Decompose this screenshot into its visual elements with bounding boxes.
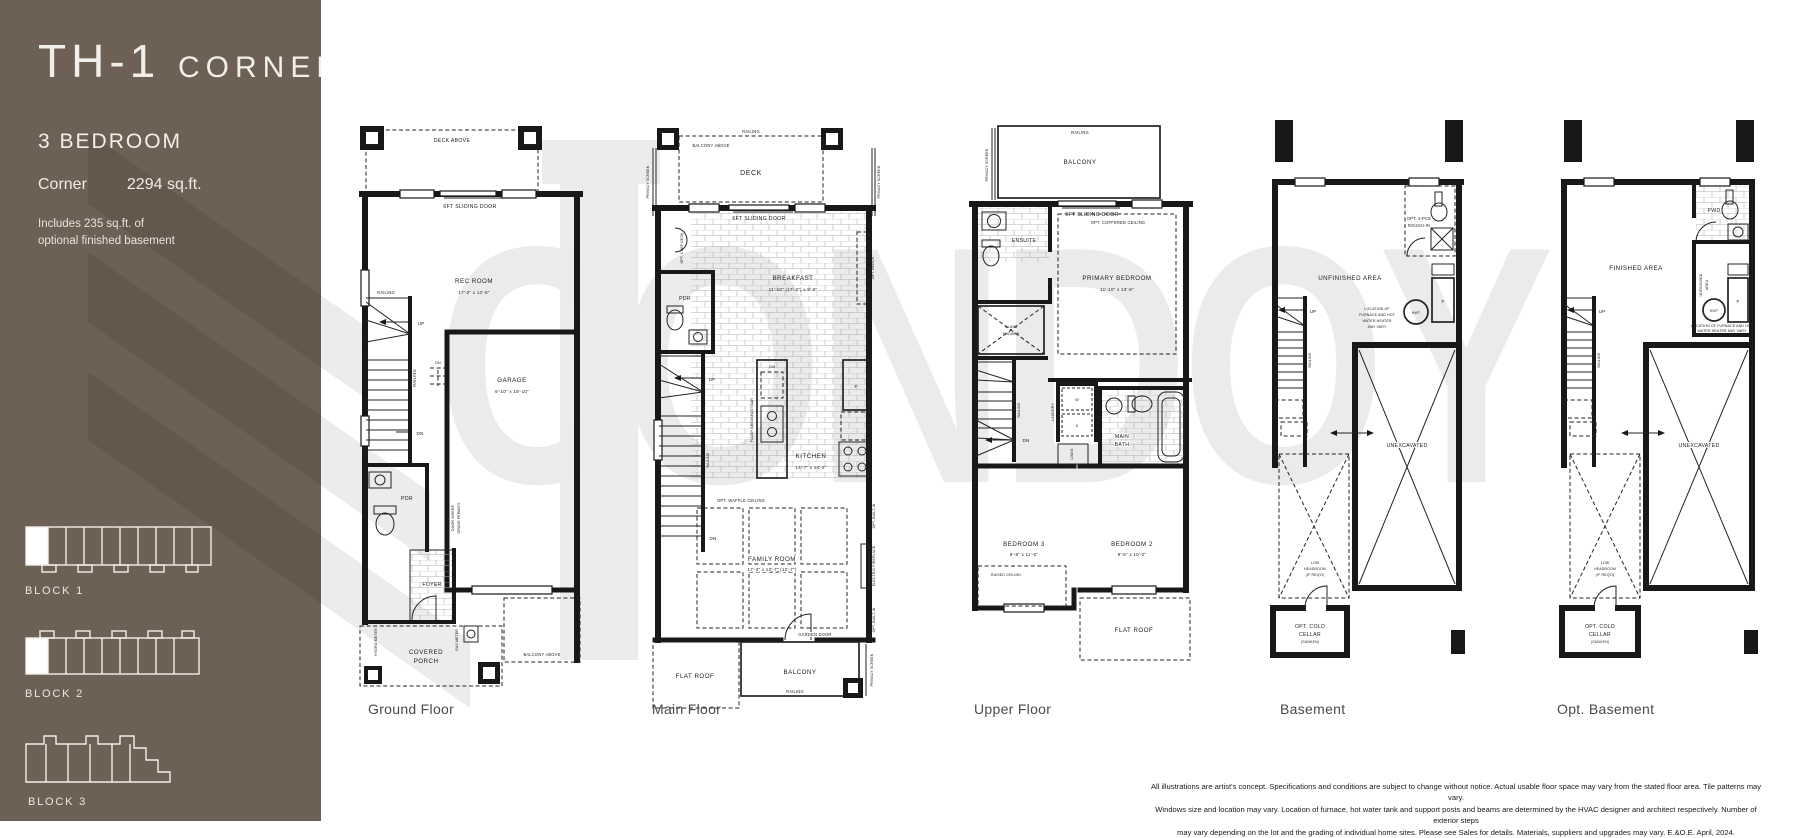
upper-bath-tile <box>1100 388 1184 462</box>
optb-furnace-label: F <box>1736 299 1739 304</box>
upper-glass-shower <box>978 306 1044 354</box>
upper-dn-label: DN <box>1022 438 1029 443</box>
upper-shower-label: SHOWER <box>1003 332 1020 336</box>
upper-primary-dim: 11'-10" x 13'-6" <box>1100 287 1134 292</box>
basement-unexcavated-label: UNEXCAVATED <box>1386 443 1427 449</box>
basement-note: Includes 235 sq.ft. of optional finished… <box>38 216 175 251</box>
basement-railing-label: RAILING <box>1308 352 1312 367</box>
main-railing-balcony-label: RAILING <box>786 689 804 694</box>
optb-note-line2: WATER HEATER MAY VARY <box>1698 329 1747 333</box>
ground-sliding-door-label: 6FT SLIDING DOOR <box>443 204 496 210</box>
basement-low-label2: HEADROOM <box>1304 567 1326 571</box>
basement-cellar-label1: OPT. COLD <box>1295 624 1325 630</box>
caption-ground-floor: Ground Floor <box>368 701 454 717</box>
upper-bed3-dim: 8'-5" x 11'-5" <box>1010 552 1038 557</box>
main-builtin-top-label: OPT. BUILT-IN <box>872 503 876 528</box>
optb-unexcavated-label: UNEXCAVATED <box>1678 443 1719 449</box>
optb-unfinished-label1: UNFINISHED <box>1699 273 1703 296</box>
main-up-label: UP <box>709 377 716 382</box>
upper-bed2-dim: 8'-5" x 10'-2" <box>1118 552 1147 557</box>
upper-raised-ceiling-area <box>978 566 1066 606</box>
ground-balcony-above-label: BALCONY ABOVE <box>523 652 560 657</box>
ground-dn-label: DN <box>416 431 423 436</box>
caption-opt-basement: Opt. Basement <box>1557 701 1654 717</box>
upper-raised-ceiling-label: RAISED CEILING <box>991 573 1021 577</box>
basement-roughin-label2: ROUGH-IN <box>1408 223 1430 228</box>
main-kitchen-dim: 14'-7" x 14'-2" <box>795 465 826 470</box>
basement-unfinished-label: UNFINISHED AREA <box>1318 275 1382 282</box>
upper-ensuite-tile <box>976 206 1050 262</box>
ground-deck-above <box>360 126 542 192</box>
ground-deck-above-label: DECK ABOVE <box>434 138 471 144</box>
plan-basement: OPT. 3-PCE ROUGH-IN UNFINISHED AREA HWT … <box>1267 120 1505 700</box>
optb-note-line1: LOCATION OF FURNACE AND HOT <box>1691 324 1754 328</box>
optb-cold-cellar <box>1562 586 1758 655</box>
main-sliding-door-label: 6FT SLIDING DOOR <box>732 216 785 222</box>
ground-garage-dim: 9'-10" x 19'-10" <box>495 389 529 394</box>
floorplan-brochure-page: { "sidebar": { "title_main": "TH-1", "ti… <box>0 0 1814 821</box>
basement-low-label3: (IF REQ'D) <box>1306 573 1325 577</box>
upper-bed2-label: BEDROOM 2 <box>1111 541 1153 548</box>
caption-main-floor: Main Floor <box>652 701 721 717</box>
ground-porch-label1: COVERED <box>409 649 443 656</box>
disclaimer: All illustrations are artist's concept. … <box>1150 781 1762 838</box>
main-waffle-label: OPT. WAFFLE CEILING <box>717 498 765 503</box>
basement-stairs <box>1275 298 1307 465</box>
ground-walls <box>361 190 580 660</box>
ground-pdr-label: PDR <box>401 496 413 502</box>
main-fridge-label: F <box>854 384 857 389</box>
ground-door-grade-label2: GRADE PERMITS <box>457 502 461 534</box>
ground-porch <box>360 626 502 686</box>
main-family-room-dim: 17'-2" x 13'-7" (12'-7") <box>747 567 796 572</box>
caption-upper-floor: Upper Floor <box>974 701 1051 717</box>
main-railing-top-label: RAILING <box>742 129 760 134</box>
optb-stairs <box>1564 298 1596 465</box>
disclaimer-line2: Windows size and location may vary. Loca… <box>1150 804 1762 827</box>
optb-cellar-label3: (SUNKEN) <box>1591 640 1609 644</box>
ground-up-label: UP <box>418 321 425 326</box>
main-flat-roof-label: FLAT ROOF <box>676 673 715 680</box>
unit-area-label: 2294 sq.ft. <box>127 176 202 194</box>
basement-mechanical <box>1404 264 1454 324</box>
ground-garage-label: GARAGE <box>497 377 526 384</box>
plan-title-variant: CORNER <box>178 51 321 84</box>
upper-main-bath-label1: MAIN <box>1115 434 1129 440</box>
basement-cold-cellar <box>1273 586 1465 655</box>
basement-note-line1: LOCATION OF <box>1364 307 1390 311</box>
upper-dryer-label: D <box>1076 424 1079 428</box>
ground-railing-label: RAILING <box>377 290 395 295</box>
block-1-keyplan <box>24 515 214 579</box>
sidebar: TH-1 CORNER 3 BEDROOM Corner 2294 sq.ft.… <box>0 0 321 821</box>
block-2-keyplan <box>24 622 202 680</box>
basement-cellar-label3: (SUNKEN) <box>1301 640 1319 644</box>
ground-gas-meter-label: GAS METER <box>455 629 459 651</box>
plan-title: TH-1 CORNER <box>38 34 321 88</box>
main-builtin-bottom-label: OPT. BUILT-IN <box>872 607 876 632</box>
main-deck <box>653 128 875 216</box>
basement-roughin <box>1405 186 1455 256</box>
main-deck-label: DECK <box>740 170 762 177</box>
plan-main-floor: RAILING BALCONY ABOVE DECK PRIVACY SCREE… <box>645 120 883 720</box>
upper-primary-label: PRIMARY BEDROOM <box>1082 275 1151 282</box>
upper-coffered-label: OPT. COFFERED CEILING <box>1091 220 1145 225</box>
main-fireplace-label: ELECTRIC FIREPLACE <box>872 545 876 586</box>
main-breakfast-bar-label: FLUSH BREAKFAST BAR <box>750 398 754 442</box>
basement-roughin-label1: OPT. 3-PCE <box>1407 216 1431 221</box>
upper-flat-roof-label: FLAT ROOF <box>1115 627 1154 634</box>
basement-up-label: UP <box>1310 309 1317 314</box>
optb-up-label: UP <box>1599 309 1606 314</box>
basement-low-label1: LOW <box>1311 561 1320 565</box>
main-family-room-label: FAMILY ROOM <box>748 556 796 563</box>
upper-laundry-label: LAUNDRY <box>1051 403 1055 421</box>
optb-cellar-label2: CELLAR <box>1589 632 1611 638</box>
optb-mechanical <box>1703 264 1748 322</box>
optb-unfinished-label2: AREA <box>1705 279 1709 290</box>
main-kitchen-label: KITCHEN <box>796 453 827 460</box>
plan-upper-floor: RAILING BALCONY PRIVACY SCREEN 5FT SLIDI… <box>962 120 1200 700</box>
spec-row: Corner 2294 sq.ft. <box>38 176 202 194</box>
block-2-label: BLOCK 2 <box>25 688 84 700</box>
main-privacy-right-label: PRIVACY SCREEN <box>877 165 881 198</box>
optb-low-label2: HEADROOM <box>1594 567 1616 571</box>
upper-glass-label: GLASS <box>1005 325 1018 329</box>
upper-main-bath-label2: BATH <box>1115 442 1130 448</box>
ground-rec-room-dim: 17'-2" x 12'-6" <box>458 290 489 295</box>
optb-pwd-label: PWD <box>1707 208 1720 214</box>
main-balcony-above-label: BALCONY ABOVE <box>692 143 729 148</box>
main-garden-door-label: GARDEN DOOR <box>798 632 831 637</box>
ground-rec-room-label: REC ROOM <box>455 278 493 285</box>
optb-finished-label: FINISHED AREA <box>1609 265 1663 272</box>
ground-powder-room <box>365 465 427 550</box>
plan-title-model: TH-1 <box>38 35 160 87</box>
ground-railing-vertical-label: RAILING <box>412 369 417 387</box>
ground-foyer-label: FOYER <box>422 582 441 588</box>
disclaimer-line1: All illustrations are artist's concept. … <box>1150 781 1762 804</box>
main-dw-label: DW <box>769 365 776 369</box>
main-privacy-balcony-label: PRIVACY SCREEN <box>870 653 874 686</box>
main-balcony-label: BALCONY <box>783 669 816 676</box>
main-chef-desk-label: OPT. CHEF DESK <box>680 232 684 263</box>
ground-porch-label2: PORCH <box>414 658 439 665</box>
block-1-label: BLOCK 1 <box>25 585 84 597</box>
upper-stairs <box>976 362 1014 460</box>
unit-type-label: Corner <box>38 176 87 194</box>
optb-cellar-label1: OPT. COLD <box>1585 624 1615 630</box>
ground-dn-steps-label: DN <box>435 361 441 365</box>
basement-note-line2: optional finished basement <box>38 233 175 250</box>
ground-hydro-meter-label: HYDRO METER <box>374 628 378 656</box>
upper-sliding-door-label: 5FT SLIDING DOOR <box>1065 212 1118 218</box>
basement-note-line3: WATER HEATER <box>1362 319 1391 323</box>
optb-low-label3: (IF REQ'D) <box>1596 573 1615 577</box>
ground-garage-steps <box>430 368 446 386</box>
upper-privacy-label: PRIVACY SCREEN <box>985 148 989 181</box>
caption-basement: Basement <box>1280 701 1345 717</box>
plan-opt-basement: FINISHED AREA PWD UNFINISHED AREA HWT F … <box>1556 120 1800 700</box>
main-railing-stairs-label: RAILING <box>706 452 710 467</box>
optb-railing-label: RAILING <box>1597 352 1601 367</box>
basement-cellar-label2: CELLAR <box>1299 632 1321 638</box>
ground-stairs <box>366 298 410 465</box>
basement-note-line2: FURNACE AND HOT <box>1359 313 1396 317</box>
block-3-label: BLOCK 3 <box>28 796 87 808</box>
main-dn-label: DN <box>709 536 716 541</box>
upper-primary-bedroom <box>1058 214 1176 354</box>
upper-ensuite-label: ENSUITE <box>1012 238 1037 244</box>
upper-laundry <box>1058 384 1096 440</box>
basement-note-line1: Includes 235 sq.ft. of <box>38 216 175 233</box>
main-breakfast-dim: 11'-10" (17'-2") x 9'-0" <box>769 287 818 292</box>
main-pdr-label: PDR <box>679 296 691 302</box>
upper-linen-label: LINEN <box>1070 448 1074 459</box>
upper-railing-top-label: RAILING <box>1071 130 1089 135</box>
main-breakfast-label: BREAKFAST <box>773 275 814 282</box>
upper-bed3-label: BEDROOM 3 <box>1003 541 1045 548</box>
optb-hwt-label: HWT <box>1710 309 1719 313</box>
main-tile-floor <box>691 212 869 478</box>
basement-hwt-label: HWT <box>1412 311 1421 315</box>
main-privacy-left-label: PRIVACY SCREEN <box>646 165 650 198</box>
basement-furnace-label: F <box>1441 299 1444 304</box>
disclaimer-line3: may vary depending on the lot and the gr… <box>1150 827 1762 838</box>
bedroom-count-label: 3 BEDROOM <box>38 130 182 154</box>
upper-balcony-label: BALCONY <box>1063 159 1096 166</box>
main-opt-bench-label: OPT. BENCH <box>871 256 875 279</box>
ground-door-grade-label1: DOOR WHERE <box>451 504 455 531</box>
plan-ground-floor: DECK ABOVE 6FT SLIDING DOOR REC ROOM 17'… <box>352 120 590 700</box>
upper-railing-stairs-label: RAILING <box>1017 402 1021 417</box>
block-3-keyplan <box>24 726 174 792</box>
optb-low-label1: LOW <box>1601 561 1610 565</box>
upper-washer-label: W <box>1075 398 1079 402</box>
basement-note-line4: MAY VARY <box>1368 325 1387 329</box>
